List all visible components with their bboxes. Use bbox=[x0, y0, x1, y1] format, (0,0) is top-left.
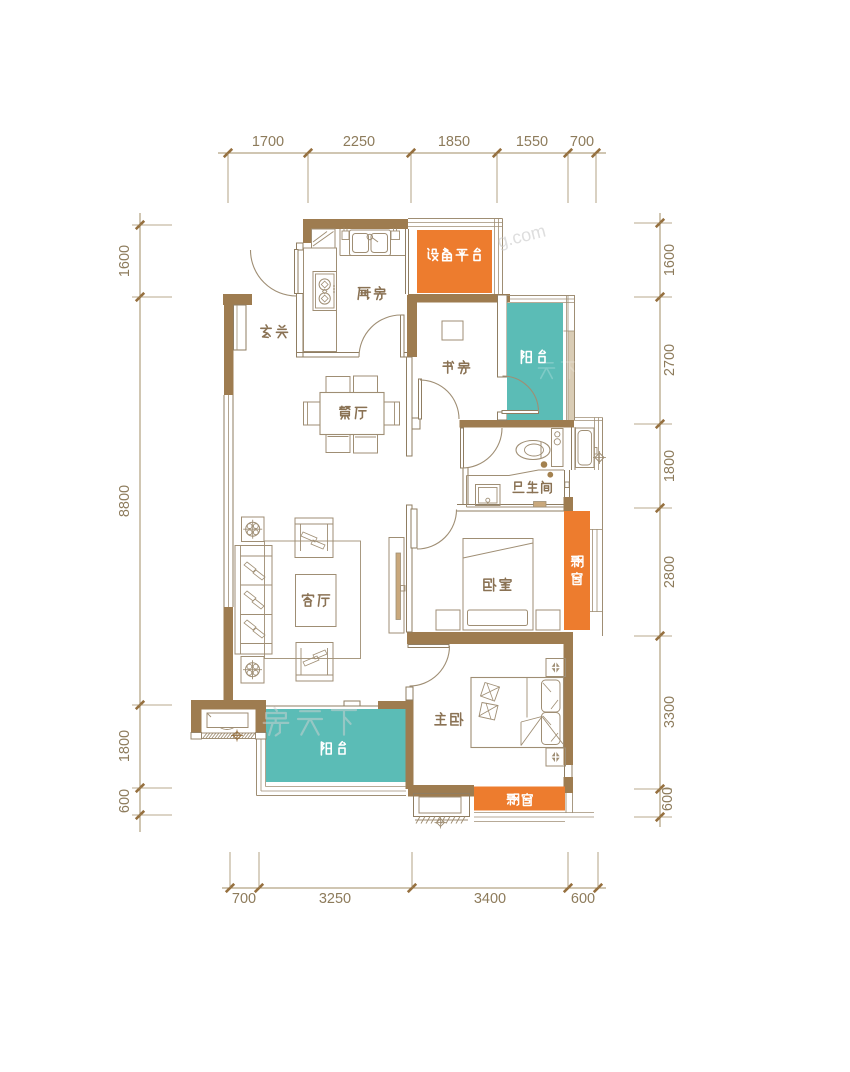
svg-text:3300: 3300 bbox=[662, 696, 678, 728]
svg-text:3250: 3250 bbox=[319, 891, 351, 907]
svg-text:2800: 2800 bbox=[662, 556, 678, 588]
svg-text:600: 600 bbox=[571, 891, 595, 907]
svg-text:600: 600 bbox=[117, 789, 133, 813]
svg-text:1800: 1800 bbox=[117, 730, 133, 762]
svg-text:600: 600 bbox=[660, 787, 676, 811]
svg-text:8800: 8800 bbox=[117, 485, 133, 517]
svg-text:1600: 1600 bbox=[117, 245, 133, 277]
svg-text:3400: 3400 bbox=[474, 891, 506, 907]
svg-text:1600: 1600 bbox=[662, 244, 678, 276]
svg-text:1700: 1700 bbox=[252, 134, 284, 150]
svg-text:g.com: g.com bbox=[495, 221, 547, 252]
svg-text:1850: 1850 bbox=[438, 134, 470, 150]
svg-text:2700: 2700 bbox=[662, 344, 678, 376]
svg-text:700: 700 bbox=[570, 134, 594, 150]
svg-text:1550: 1550 bbox=[516, 134, 548, 150]
svg-text:1800: 1800 bbox=[662, 450, 678, 482]
svg-text:2250: 2250 bbox=[343, 134, 375, 150]
svg-text:700: 700 bbox=[232, 891, 256, 907]
